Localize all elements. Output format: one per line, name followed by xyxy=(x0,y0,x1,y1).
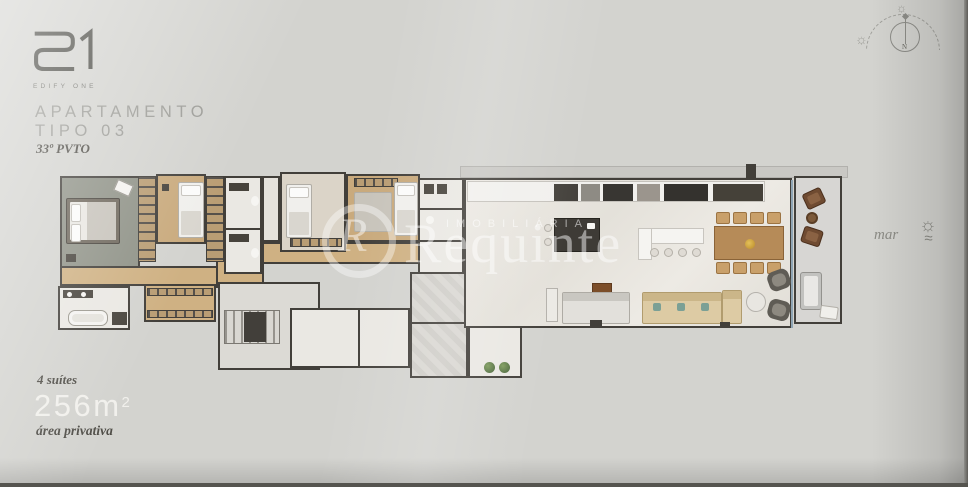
closet-corridor xyxy=(144,284,216,322)
north-needle xyxy=(905,17,907,44)
master-bench xyxy=(66,254,76,262)
dining-chair xyxy=(716,212,730,224)
bar-stool xyxy=(650,248,659,257)
dining-chair xyxy=(767,212,781,224)
wardrobe-row-bottom xyxy=(147,310,213,318)
brand-name: EDIFY ONE xyxy=(33,83,97,90)
tv-shelf xyxy=(546,288,558,322)
balcony-side-table xyxy=(806,212,818,224)
master-closet xyxy=(138,176,156,262)
island-stool xyxy=(544,238,552,246)
bathroom-divider-wall xyxy=(226,228,260,230)
dining-chair xyxy=(733,262,747,274)
teal-pillow xyxy=(701,303,709,311)
bar-stool xyxy=(678,248,687,257)
kitchen-counter xyxy=(467,181,765,202)
coffee-table xyxy=(746,292,766,312)
laundry-sink xyxy=(426,216,434,224)
hall-suites xyxy=(262,176,280,242)
balcony-lounger xyxy=(819,305,839,320)
dryer xyxy=(437,184,447,194)
logo-e1-mark xyxy=(32,28,100,76)
wall-nub xyxy=(720,322,730,328)
suite2-wardrobe xyxy=(206,176,224,262)
floor-plan xyxy=(58,164,852,388)
tall-cabinets xyxy=(713,184,763,201)
sink-left xyxy=(67,292,72,297)
north-label: N xyxy=(902,43,907,51)
kitchen-island xyxy=(554,218,600,252)
photo-edge-right xyxy=(964,0,968,487)
balcony xyxy=(794,176,842,324)
wall-art xyxy=(113,179,133,197)
shower xyxy=(112,312,127,325)
wall-nub xyxy=(590,320,602,328)
balcony-lounge-chair xyxy=(800,225,824,247)
room-master-suite xyxy=(60,176,140,268)
dining-chair xyxy=(750,262,764,274)
suite4-rug xyxy=(354,192,392,232)
brochure-page: EDIFY ONE APARTAMENTO TIPO 03 33º PVTO 4… xyxy=(0,0,968,487)
wardrobe-row-top xyxy=(147,288,213,296)
table-flowers xyxy=(745,239,755,249)
bathroom2-toilet xyxy=(251,248,259,258)
kitchen-sink xyxy=(637,184,660,201)
kitchen-appliance xyxy=(554,184,578,201)
cooktop xyxy=(603,184,633,201)
balcony-glass-door xyxy=(791,180,793,328)
dining-chair xyxy=(733,212,747,224)
hall-divider-wall xyxy=(358,310,360,366)
washer xyxy=(424,184,434,194)
private-area-label: área privativa xyxy=(36,423,113,439)
kitchen-appliance xyxy=(664,184,708,201)
room-suite-4 xyxy=(346,174,420,242)
island-sink xyxy=(587,223,595,229)
waves-icon: ≈ xyxy=(910,231,946,246)
teal-pillow xyxy=(677,303,685,311)
sun-path-west-icon: ☼ xyxy=(855,31,868,47)
dining-chair xyxy=(750,212,764,224)
plant-icon xyxy=(484,362,495,373)
bathroom1-toilet xyxy=(251,196,259,206)
sofa-beige xyxy=(642,292,722,324)
area-number: 256m xyxy=(34,388,122,423)
laundry-divider1 xyxy=(420,208,462,210)
bathroom2-vanity xyxy=(229,234,249,242)
page-title-line1: APARTAMENTO xyxy=(35,103,208,122)
corridor-master xyxy=(60,266,218,286)
laundry-rooms xyxy=(418,178,464,274)
stair-core xyxy=(244,312,266,342)
photo-edge-bottom xyxy=(0,483,968,487)
suite4-bed xyxy=(394,182,418,236)
bathroom1-vanity xyxy=(229,183,249,191)
kitchen-appliance xyxy=(581,184,600,201)
page-title-line2: TIPO 03 xyxy=(35,122,129,141)
room-suite-2 xyxy=(156,174,206,244)
sink-right xyxy=(81,292,86,297)
suite3-bed xyxy=(286,184,312,238)
island-stool xyxy=(544,224,552,232)
suite4-closet xyxy=(354,178,398,187)
suite3-wardrobe xyxy=(290,238,342,247)
bathrooms-suites xyxy=(224,176,262,274)
plant-icon xyxy=(499,362,510,373)
sun-over-sea-icon: ☼ ≈ xyxy=(910,216,946,250)
room-suite-3 xyxy=(280,172,346,252)
balcony-daybed xyxy=(800,272,822,310)
teal-pillow xyxy=(653,303,661,311)
dining-table xyxy=(714,226,784,260)
floor-label: 33º PVTO xyxy=(36,141,90,157)
bar-stool xyxy=(664,248,673,257)
suite2-bed xyxy=(178,182,204,238)
armchair xyxy=(766,297,792,322)
elevator-shaft-1 xyxy=(410,272,468,324)
bathtub xyxy=(68,310,108,326)
elevator-hall xyxy=(290,308,410,368)
sea-label: mar xyxy=(874,227,898,244)
master-bathroom xyxy=(58,286,130,330)
compass: ☼ ☼ N xyxy=(856,4,952,66)
social-area xyxy=(464,178,792,328)
dining-chair xyxy=(716,262,730,274)
suite2-nightstand xyxy=(162,184,169,191)
elevator-shaft-2 xyxy=(410,322,468,378)
master-bed xyxy=(66,198,120,244)
balcony-lounge-chair xyxy=(801,187,826,211)
laundry-divider2 xyxy=(420,240,462,242)
bar-stool xyxy=(692,248,701,257)
private-area-value: 256m2 xyxy=(34,388,130,424)
facade-ledge xyxy=(460,166,848,178)
area-exponent: 2 xyxy=(122,394,130,411)
bar-island-wing xyxy=(638,228,652,260)
sofa-beige-module xyxy=(722,290,742,324)
